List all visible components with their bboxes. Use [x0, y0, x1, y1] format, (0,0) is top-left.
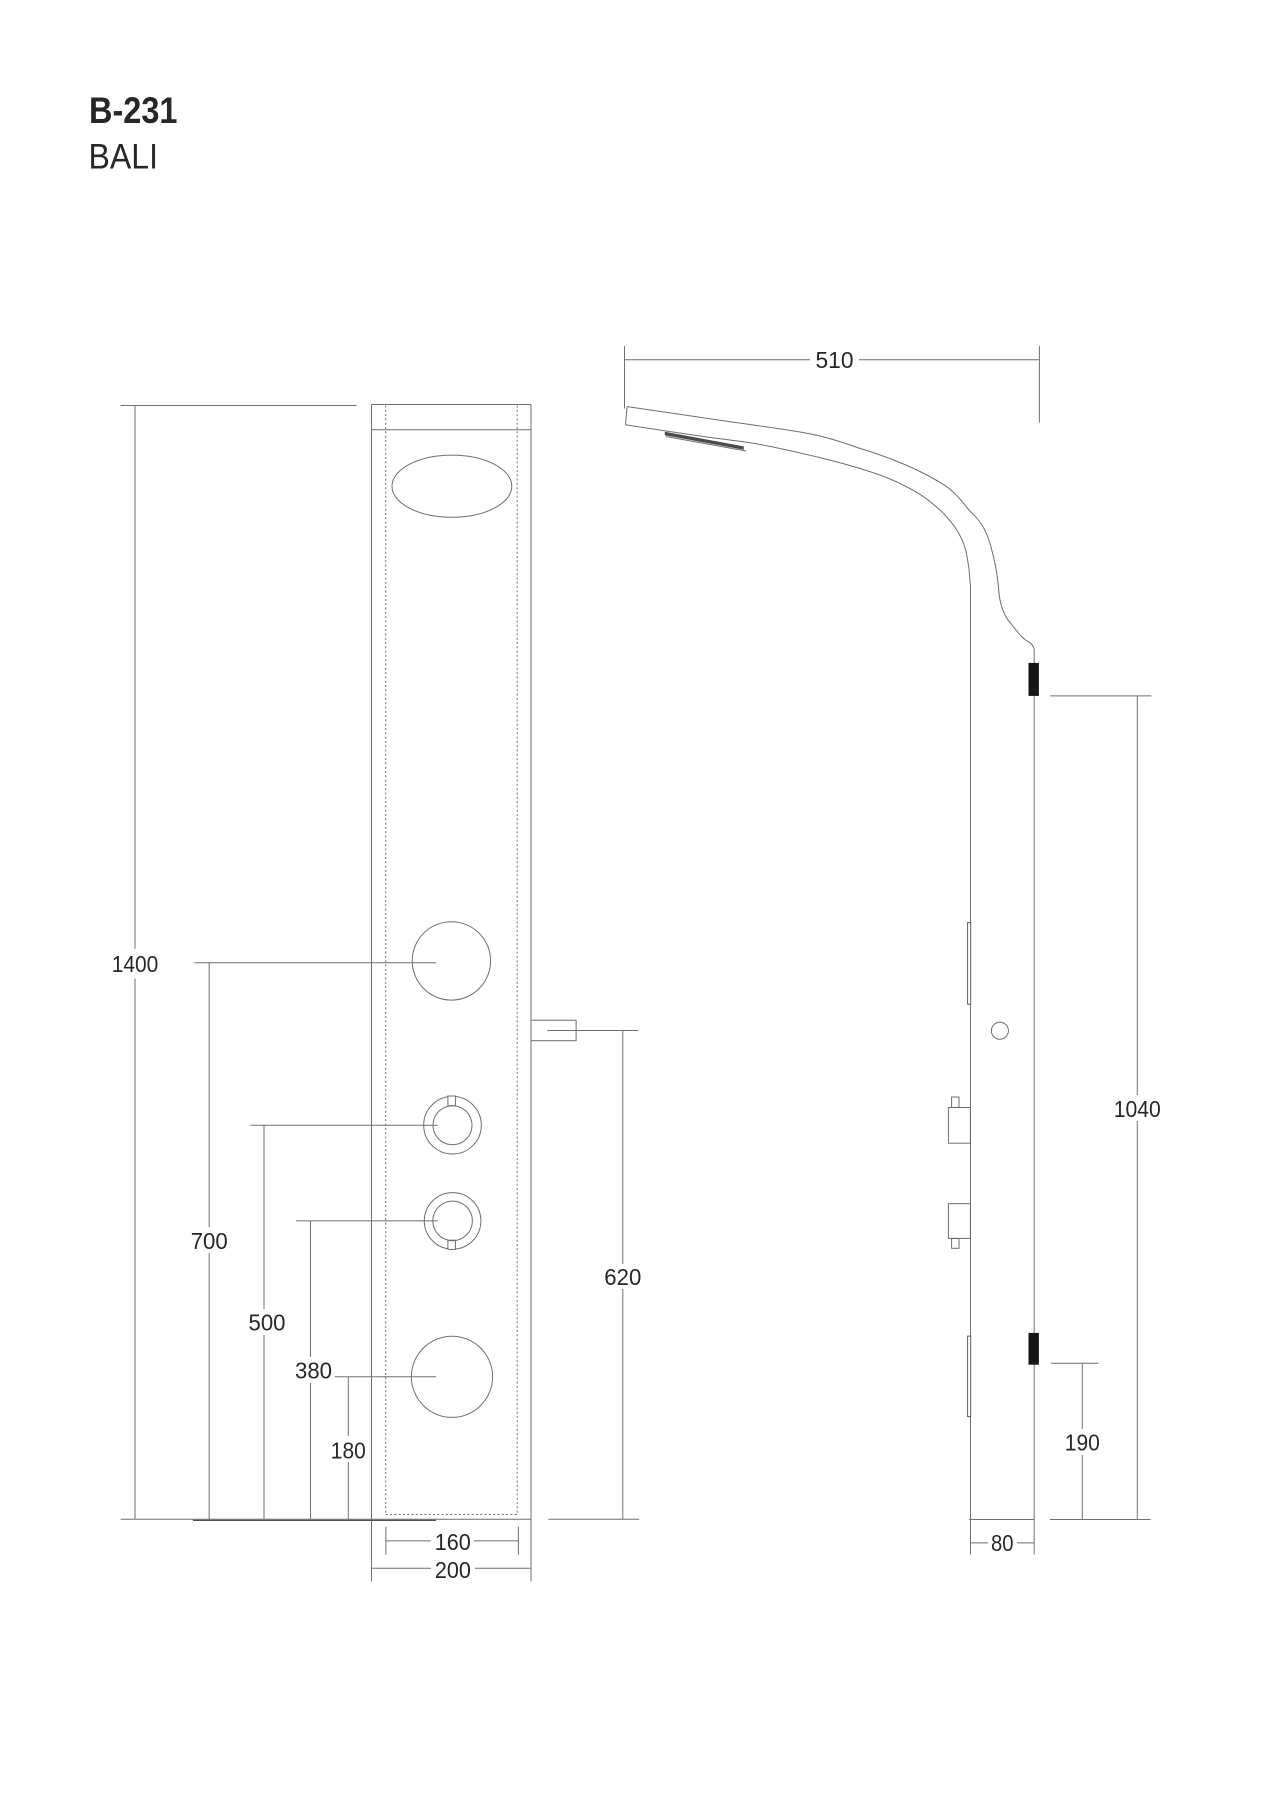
- svg-text:700: 700: [191, 1228, 228, 1254]
- svg-text:1400: 1400: [112, 951, 159, 977]
- svg-text:190: 190: [1065, 1429, 1100, 1455]
- svg-text:200: 200: [435, 1557, 471, 1583]
- svg-text:160: 160: [435, 1529, 471, 1555]
- svg-text:1040: 1040: [1114, 1096, 1161, 1122]
- svg-text:380: 380: [295, 1358, 332, 1384]
- svg-text:BALI: BALI: [89, 136, 159, 176]
- svg-text:80: 80: [991, 1530, 1014, 1556]
- svg-text:620: 620: [604, 1264, 641, 1290]
- svg-text:510: 510: [816, 347, 854, 373]
- svg-text:B-231: B-231: [89, 90, 178, 131]
- svg-text:500: 500: [249, 1310, 286, 1336]
- svg-text:180: 180: [331, 1437, 366, 1463]
